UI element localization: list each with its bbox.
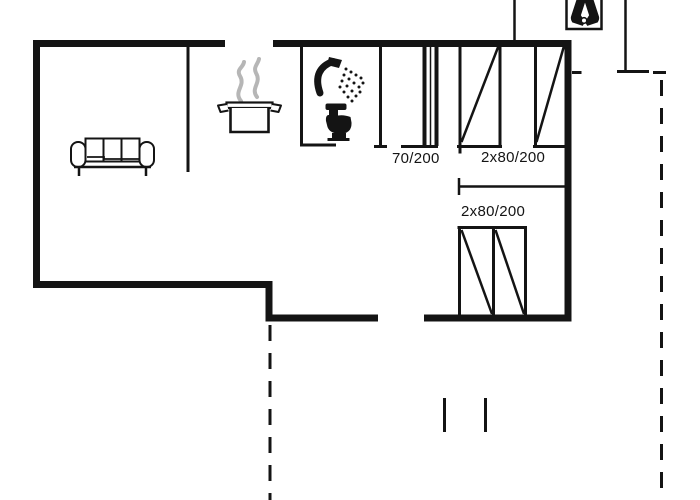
door-70-200: [401, 47, 438, 147]
sofa-legs: [79, 167, 146, 176]
panel-c-diagonal-left: [462, 230, 493, 314]
shower-icon: [318, 57, 365, 103]
pot-handle-right: [271, 104, 282, 112]
panel-a-diagonal: [462, 46, 499, 142]
panel-c-diagonal-right: [496, 230, 525, 314]
toilet-icon: [326, 104, 352, 142]
shower-arm: [318, 62, 333, 94]
terrace-step-marks: [445, 398, 486, 432]
floor-plan-canvas: 70/200 2x80/200 2x80/200: [0, 0, 700, 500]
boot-dot: [581, 18, 587, 24]
steam-wisp-right: [255, 59, 259, 97]
terrace-dashed-boundary: [270, 80, 662, 500]
pot-body: [231, 108, 269, 132]
sofa-arm-left: [71, 142, 86, 167]
double-door-top: [457, 46, 565, 154]
toilet-base: [328, 138, 350, 141]
label-top-double-door-size: 2x80/200: [481, 149, 545, 166]
toilet-bowl: [326, 115, 352, 134]
boots-icon: [567, 0, 602, 29]
pot-rim: [227, 103, 273, 109]
cooking-pot-icon: [218, 59, 281, 132]
sofa-back: [86, 139, 140, 162]
sofa-icon: [71, 139, 154, 177]
label-bottom-double-door-size: 2x80/200: [461, 203, 525, 220]
double-door-bottom: [458, 227, 528, 315]
toilet-pedestal: [332, 133, 346, 138]
interior-walls: [188, 47, 387, 172]
sofa-arm-right: [140, 142, 155, 167]
pot-handle-left: [218, 104, 229, 112]
label-interior-door-size: 70/200: [392, 150, 440, 167]
panel-b-diagonal: [537, 46, 565, 142]
steam-wisp-left: [238, 62, 244, 101]
dimension-line: [459, 178, 565, 195]
floor-plan-drawing: [0, 0, 700, 500]
shower-spray-dots: [339, 68, 365, 103]
